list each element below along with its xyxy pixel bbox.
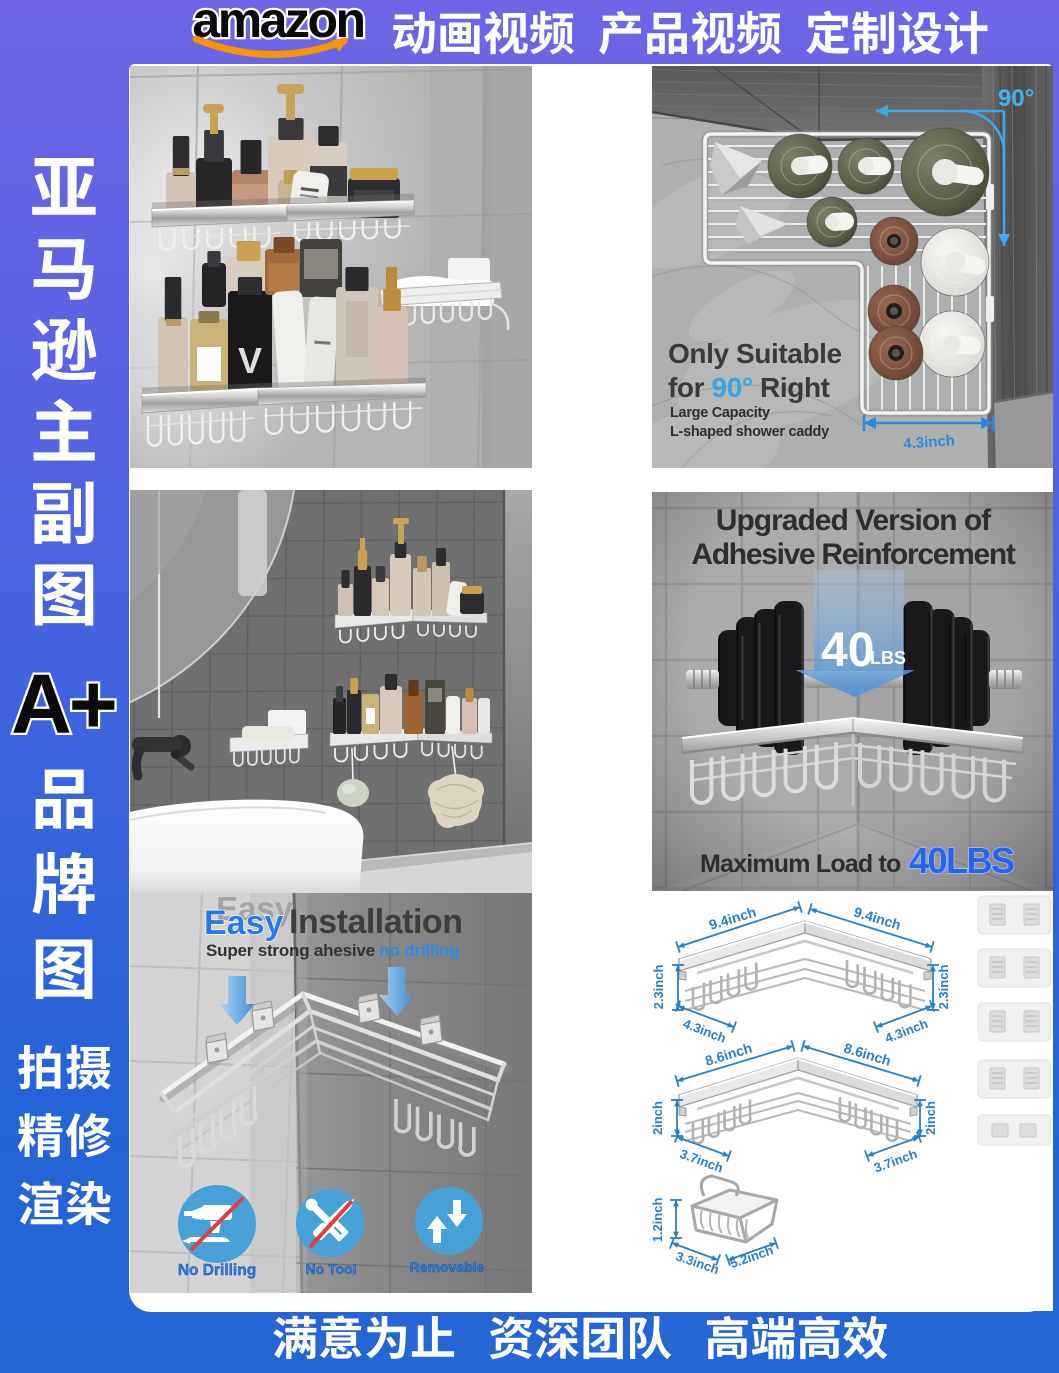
svg-text:2.3inch: 2.3inch — [652, 965, 666, 1010]
svg-text:40LBS: 40LBS — [909, 840, 1014, 881]
svg-text:Installation: Installation — [289, 903, 462, 941]
svg-text:Super strong ahesive no drilli: Super strong ahesive no drilling — [206, 941, 459, 960]
svg-text:No Tool: No Tool — [305, 1261, 356, 1277]
svg-text:2.3inch: 2.3inch — [936, 965, 951, 1010]
svg-text:Upgraded Version of: Upgraded Version of — [716, 504, 992, 537]
svg-text:2inch: 2inch — [923, 1101, 938, 1135]
svg-text:No Drilling: No Drilling — [178, 1262, 256, 1279]
svg-text:1.2inch: 1.2inch — [652, 1198, 665, 1243]
svg-text:Adhesive Reinforcement: Adhesive Reinforcement — [691, 538, 1015, 571]
svg-text:LBS: LBS — [870, 648, 906, 668]
svg-text:Large Capacity: Large Capacity — [670, 405, 770, 421]
svg-text:40: 40 — [821, 624, 874, 677]
svg-text:90°: 90° — [998, 85, 1034, 112]
svg-text:2inch: 2inch — [652, 1101, 665, 1135]
svg-text:Removable: Removable — [410, 1259, 485, 1275]
svg-text:Easy: Easy — [204, 904, 283, 942]
svg-text:4.3inch: 4.3inch — [903, 432, 956, 453]
svg-text:Only Suitable: Only Suitable — [668, 338, 842, 369]
svg-text:for 90° Right: for 90° Right — [668, 372, 830, 403]
svg-text:V: V — [238, 340, 262, 381]
svg-text:Maximum Load to: Maximum Load to — [700, 850, 901, 878]
svg-text:A+: A+ — [11, 657, 115, 751]
svg-text:L-shaped shower caddy: L-shaped shower caddy — [670, 424, 829, 440]
